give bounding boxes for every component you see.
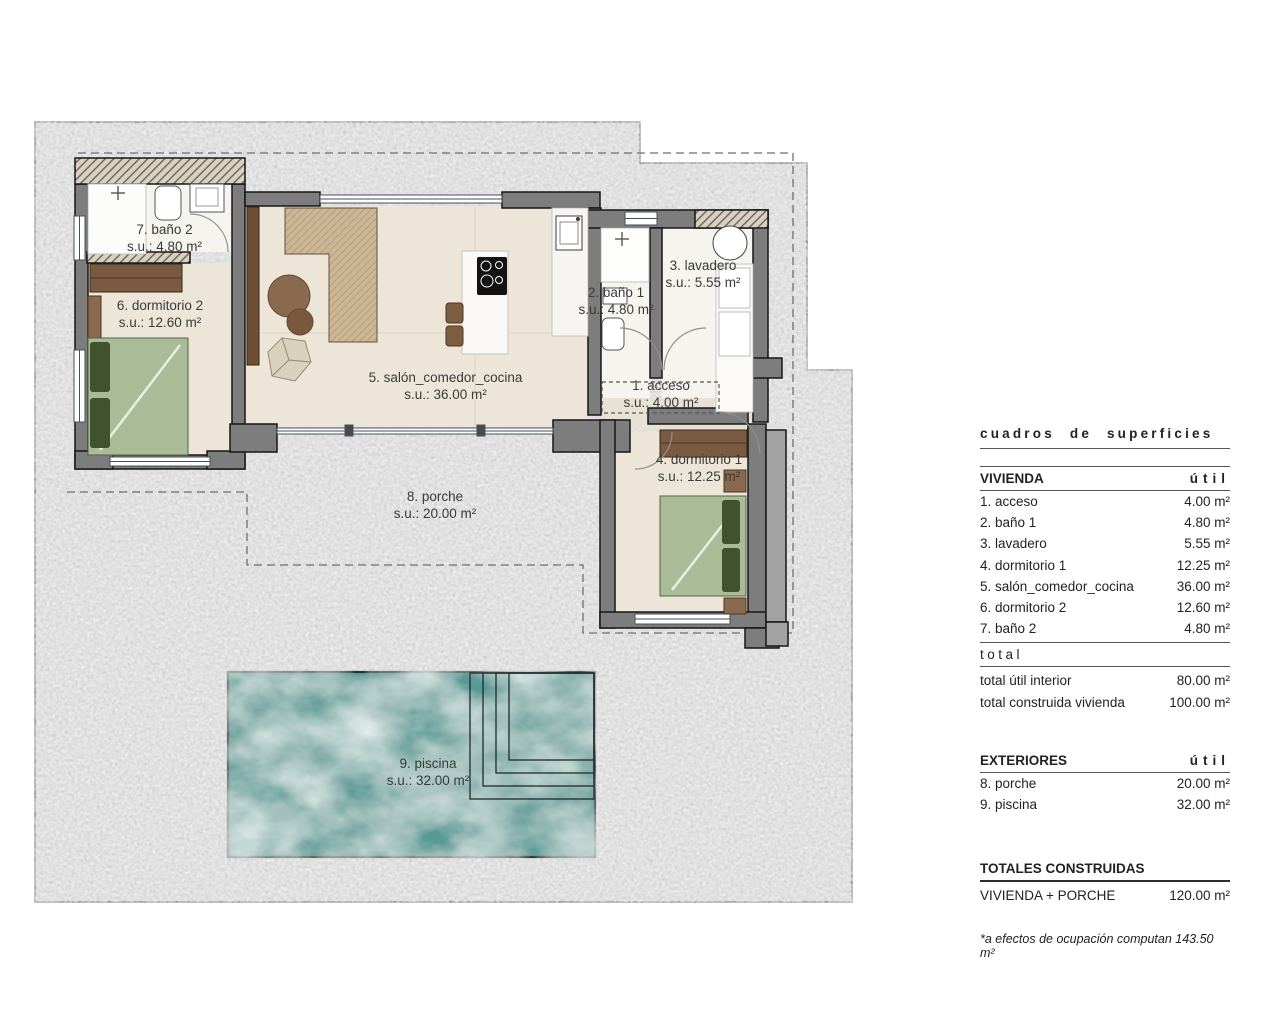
table-row: 9. piscina 32.00 m² [980, 794, 1230, 815]
vivienda-header: VIVIENDA útil [980, 466, 1230, 491]
table-row: total construida vivienda 100.00 m² [980, 692, 1230, 713]
toilet-bath1 [602, 318, 624, 350]
exteriores-header: EXTERIORES útil [980, 749, 1230, 773]
stool [446, 326, 463, 346]
side-table [287, 309, 313, 335]
table-row: 2. baño 1 4.80 m² [980, 512, 1230, 533]
surface-table: cuadros de superficies VIVIENDA útil 1. … [980, 426, 1230, 960]
table-row: 3. lavadero 5.55 m² [980, 533, 1230, 554]
table-row: total útil interior 80.00 m² [980, 670, 1230, 691]
totales-header: TOTALES CONSTRUIDAS [980, 857, 1230, 882]
room-label-piscina: 9. piscina s.u.: 32.00 m² [356, 756, 500, 789]
toilet-bath2 [155, 186, 181, 220]
room-label-dormitorio2: 6. dormitorio 2 s.u.: 12.60 m² [84, 298, 236, 331]
room-label-dormitorio1: 4. dormitorio 1 s.u.: 12.25 m² [626, 452, 772, 485]
floor-plan-page: 1. acceso s.u.: 4.00 m² 2. baño 1 s.u.: … [0, 0, 1280, 1024]
room-label-acceso: 1. acceso s.u.: 4.00 m² [602, 378, 720, 411]
util-column-header: útil [1190, 471, 1230, 486]
totals-rows: total útil interior 80.00 m² total const… [980, 667, 1230, 712]
occupancy-footnote: *a efectos de ocupación computan 143.50 … [980, 932, 1230, 960]
table-row: 5. salón_comedor_cocina 36.00 m² [980, 576, 1230, 597]
surface-table-title: cuadros de superficies [980, 426, 1230, 449]
nightstand [724, 598, 746, 614]
laundry-basin [713, 226, 747, 260]
totales-section: TOTALES CONSTRUIDAS VIVIENDA + PORCHE 12… [980, 857, 1230, 960]
room-label-salon: 5. salón_comedor_cocina s.u.: 36.00 m² [328, 370, 563, 403]
exteriores-section: EXTERIORES útil 8. porche 20.00 m² 9. pi… [980, 749, 1230, 815]
room-label-porche: 8. porche s.u.: 20.00 m² [368, 489, 502, 522]
table-row: 7. baño 2 4.80 m² [980, 618, 1230, 639]
table-row: VIVIENDA + PORCHE 120.00 m² [980, 882, 1230, 906]
room-label-bano2: 7. baño 2 s.u.: 4.80 m² [102, 222, 227, 255]
stool [446, 303, 463, 323]
table-row: 1. acceso 4.00 m² [980, 491, 1230, 512]
tall-cabinet [247, 207, 259, 365]
table-row: 4. dormitorio 1 12.25 m² [980, 555, 1230, 576]
table-row: 8. porche 20.00 m² [980, 773, 1230, 794]
room-label-lavadero: 3. lavadero s.u.: 5.55 m² [650, 258, 756, 291]
vivienda-section: VIVIENDA útil 1. acceso 4.00 m² 2. baño … [980, 466, 1230, 713]
shower-bath1 [601, 228, 649, 282]
stove [477, 257, 507, 295]
util-column-header: útil [1190, 753, 1230, 768]
total-label-row: total [980, 642, 1230, 667]
table-row: 6. dormitorio 2 12.60 m² [980, 597, 1230, 618]
